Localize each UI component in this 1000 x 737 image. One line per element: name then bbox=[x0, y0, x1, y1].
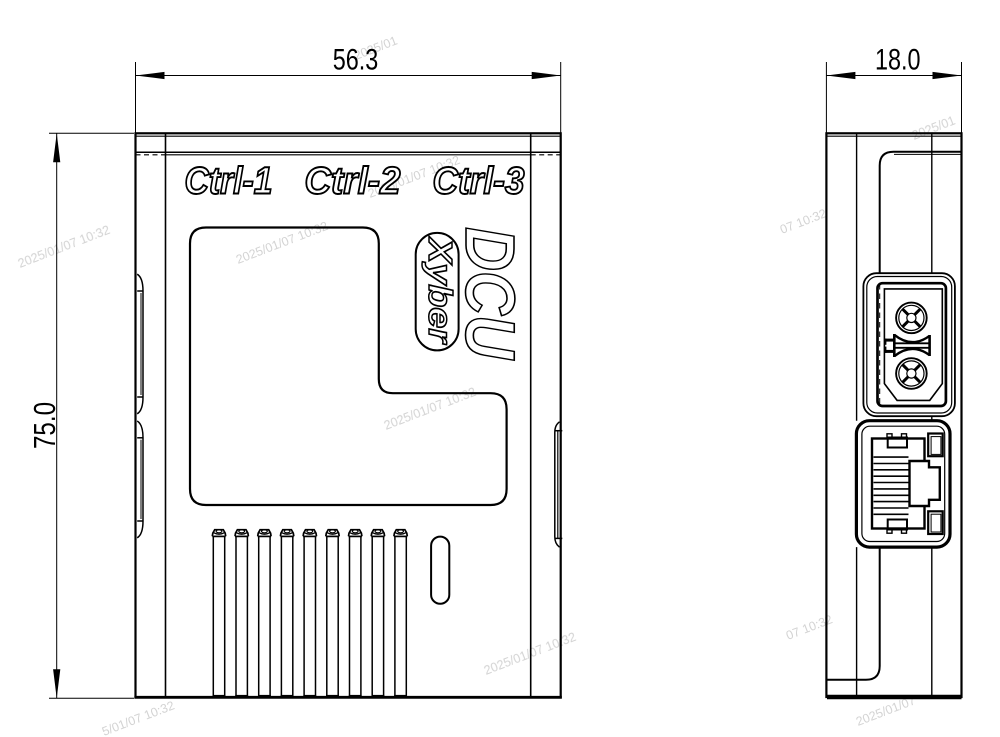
svg-text:75.0: 75.0 bbox=[27, 402, 62, 449]
svg-text:Ctrl-1: Ctrl-1 bbox=[185, 161, 273, 203]
svg-text:Ctrl-2: Ctrl-2 bbox=[305, 161, 401, 203]
svg-text:DCU: DCU bbox=[451, 227, 529, 360]
svg-text:18.0: 18.0 bbox=[875, 43, 921, 76]
svg-text:56.3: 56.3 bbox=[333, 43, 379, 76]
svg-text:Ctrl-3: Ctrl-3 bbox=[433, 161, 525, 203]
svg-text:Xyber: Xyber bbox=[422, 236, 459, 346]
